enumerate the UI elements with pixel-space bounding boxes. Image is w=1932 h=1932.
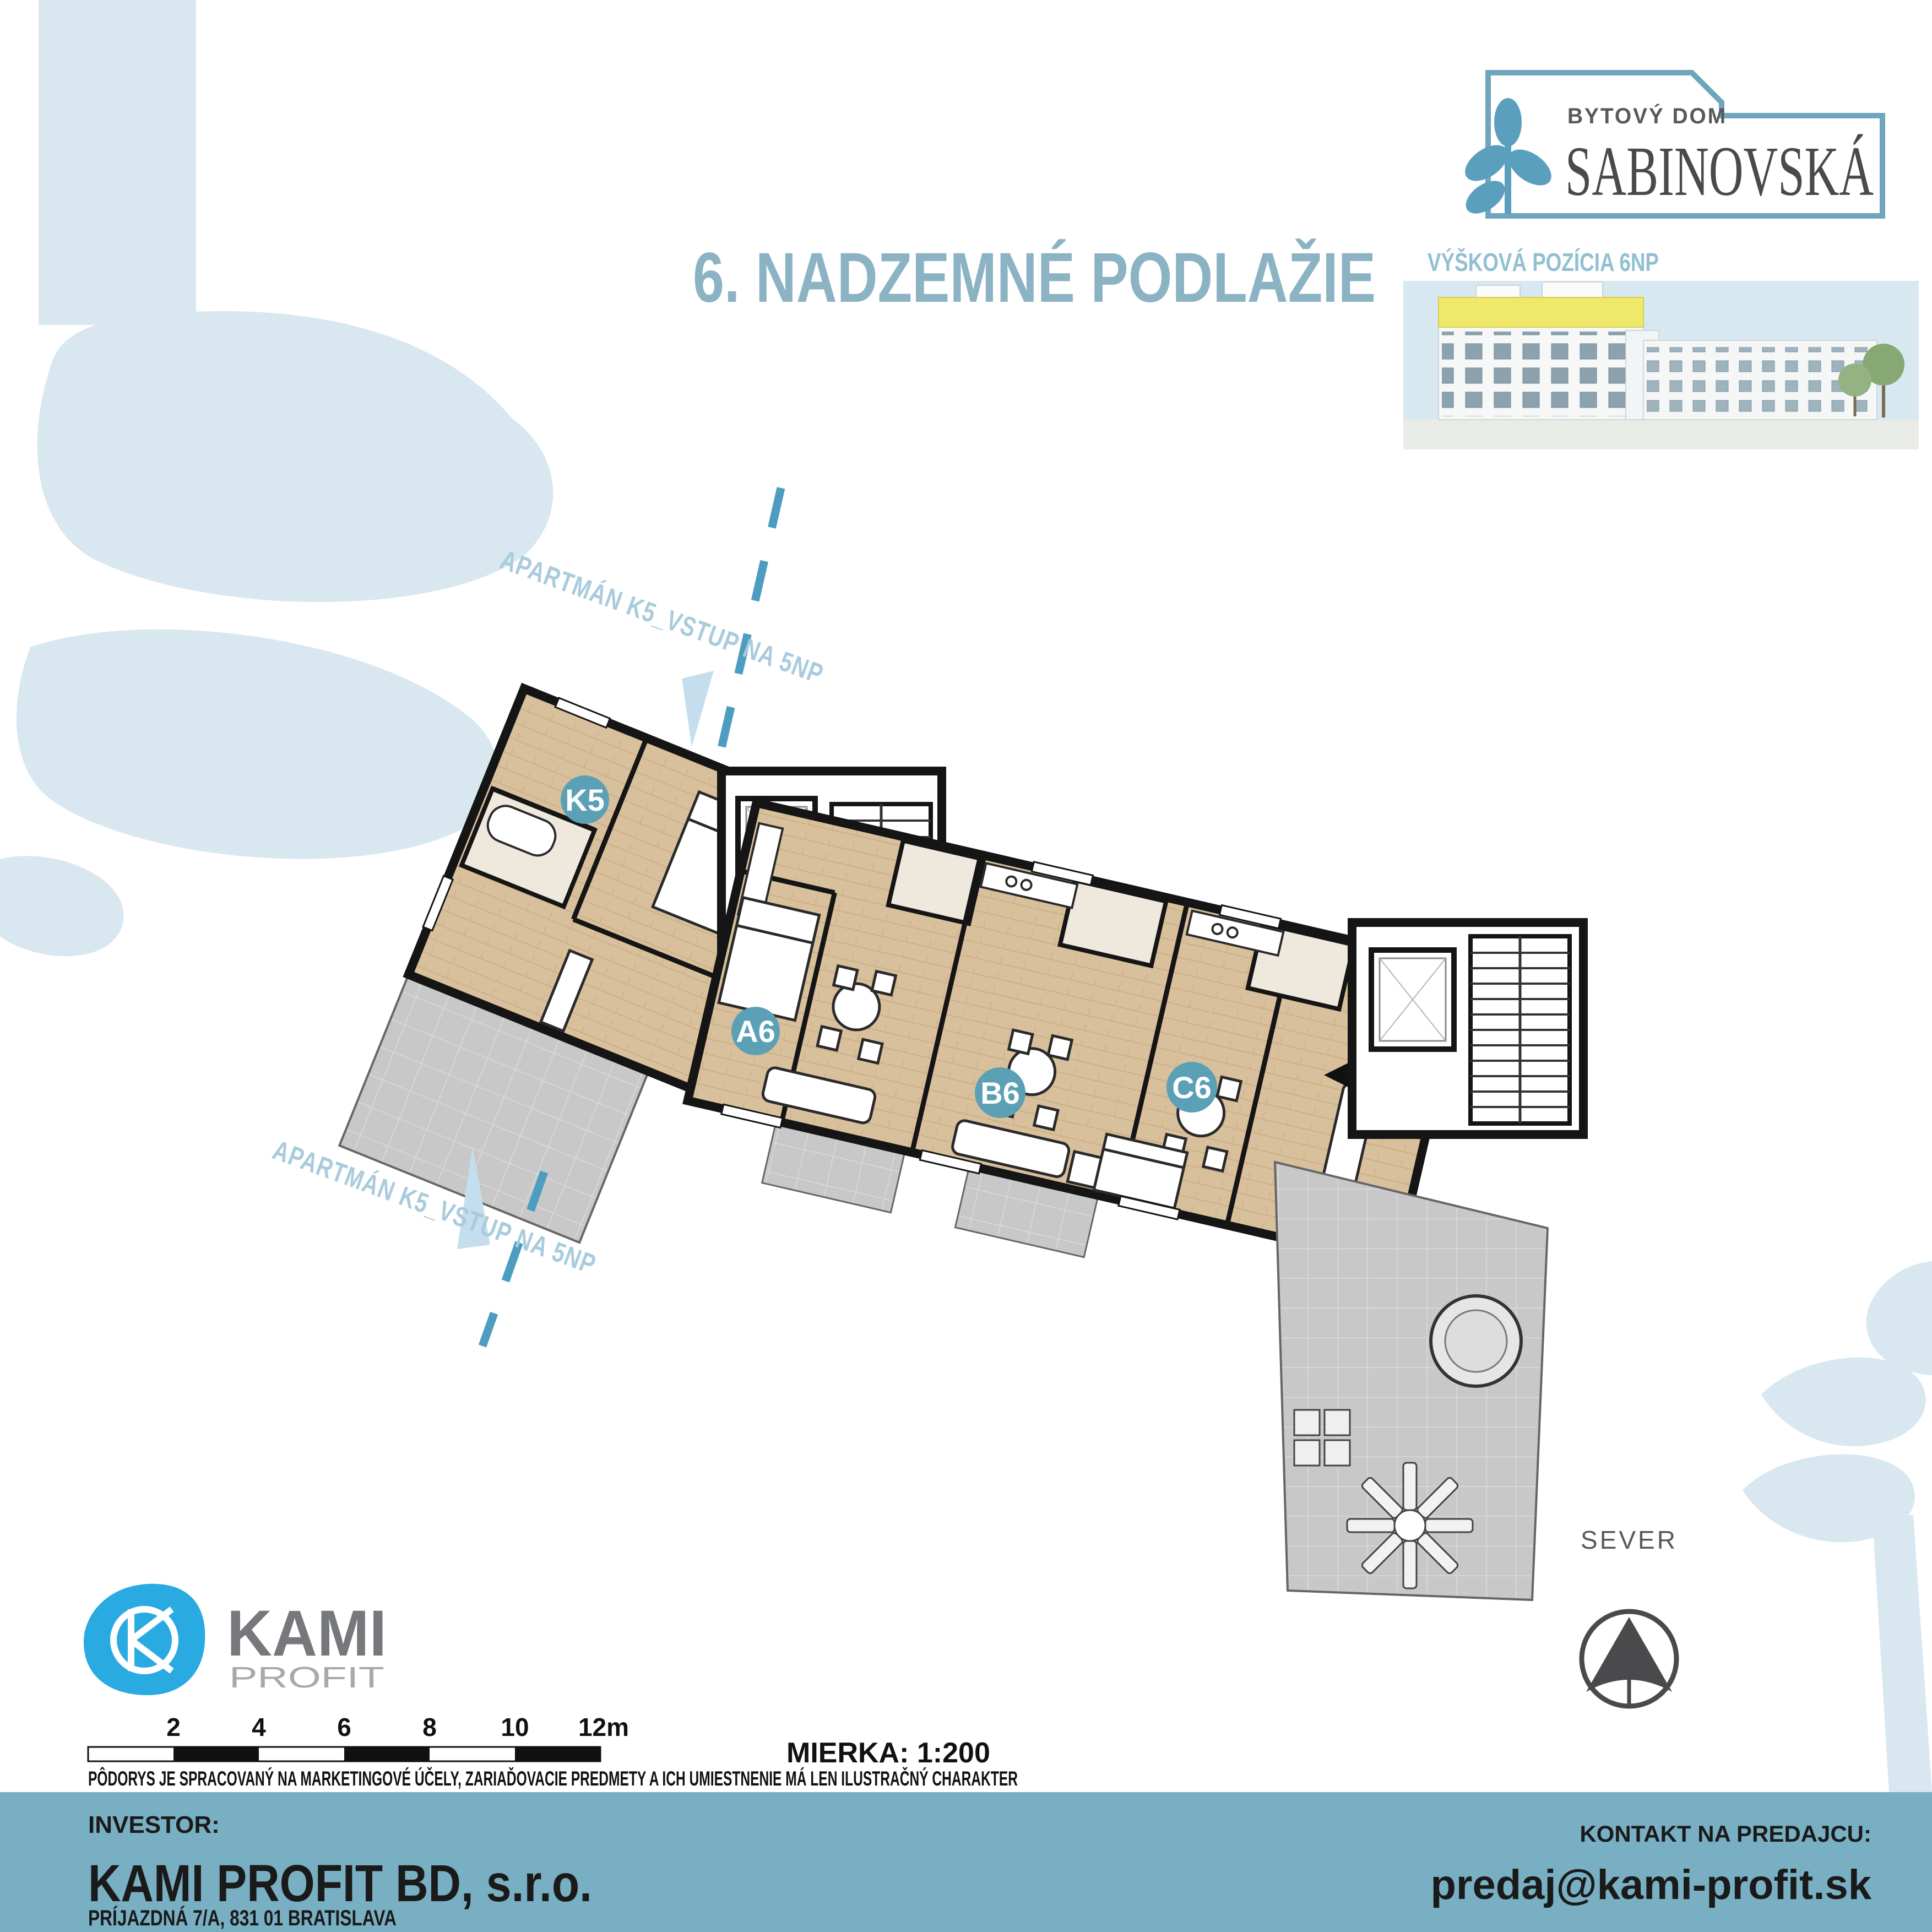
kami-subtitle: PROFIT — [229, 1661, 384, 1694]
sun-loungers — [1347, 1463, 1473, 1588]
scalebar-bar — [88, 1747, 600, 1761]
scalebar-tick: 10 — [501, 1713, 529, 1741]
investor-label: INVESTOR: — [88, 1811, 220, 1838]
badge-c6[interactable]: C6 — [1166, 1062, 1217, 1112]
scalebar-tick: 4 — [252, 1713, 266, 1741]
footer: INVESTOR: KAMI PROFIT BD, s.r.o. PRÍJAZD… — [0, 1792, 1932, 1932]
badge-b6[interactable]: B6 — [975, 1067, 1025, 1118]
scalebar-tick: 12m — [578, 1713, 629, 1741]
scalebar-tick: 6 — [337, 1713, 351, 1741]
render-floor-highlight — [1439, 297, 1643, 327]
compass-label: SEVER — [1581, 1526, 1678, 1554]
contact-email[interactable]: predaj@kami-profit.sk — [1430, 1862, 1871, 1908]
scale-label: MIERKA: 1:200 — [786, 1737, 990, 1769]
render-tree — [1838, 363, 1871, 397]
stairwell-right — [1324, 922, 1583, 1135]
floorplan-sheet: BYTOVÝ DOM SABINOVSKÁ VÝŠKOVÁ POZÍCIA 6N… — [0, 0, 1932, 1932]
badge-a6[interactable]: A6 — [731, 1007, 780, 1055]
badge-a6-label: A6 — [736, 1014, 775, 1049]
stairs — [1470, 936, 1570, 1124]
page-title: 6. NADZEMNÉ PODLAŽIE — [693, 238, 1376, 317]
scalebar-tick: 8 — [422, 1713, 437, 1741]
investor-address: PRÍJAZDNÁ 7/A, 831 01 BRATISLAVA — [88, 1906, 397, 1930]
kami-name: KAMI — [227, 1597, 387, 1670]
kami-logo: KAMI PROFIT — [84, 1584, 387, 1695]
badge-b6-label: B6 — [980, 1076, 1020, 1110]
disclaimer-text: PÔDORYS JE SPRACOVANÝ NA MARKETINGOVÉ ÚČ… — [88, 1767, 1018, 1790]
badge-k5[interactable]: K5 — [561, 775, 609, 824]
logo-name: SABINOVSKÁ — [1565, 132, 1874, 210]
investor-name: KAMI PROFIT BD, s.r.o. — [88, 1854, 592, 1913]
contact-label: KONTAKT NA PREDAJCU: — [1580, 1821, 1871, 1847]
scalebar-tick: 2 — [166, 1713, 181, 1741]
render-ground — [1403, 420, 1919, 449]
render-caption: VÝŠKOVÁ POZÍCIA 6NP — [1428, 248, 1659, 276]
render-windows — [1442, 332, 1640, 416]
leaf-stem — [39, 0, 196, 325]
badge-k5-label: K5 — [565, 783, 605, 817]
logo-top-label: BYTOVÝ DOM — [1567, 103, 1727, 128]
terrace-right — [1275, 1162, 1548, 1600]
north-arrow-icon — [1582, 1611, 1676, 1706]
badge-c6-label: C6 — [1172, 1070, 1212, 1105]
